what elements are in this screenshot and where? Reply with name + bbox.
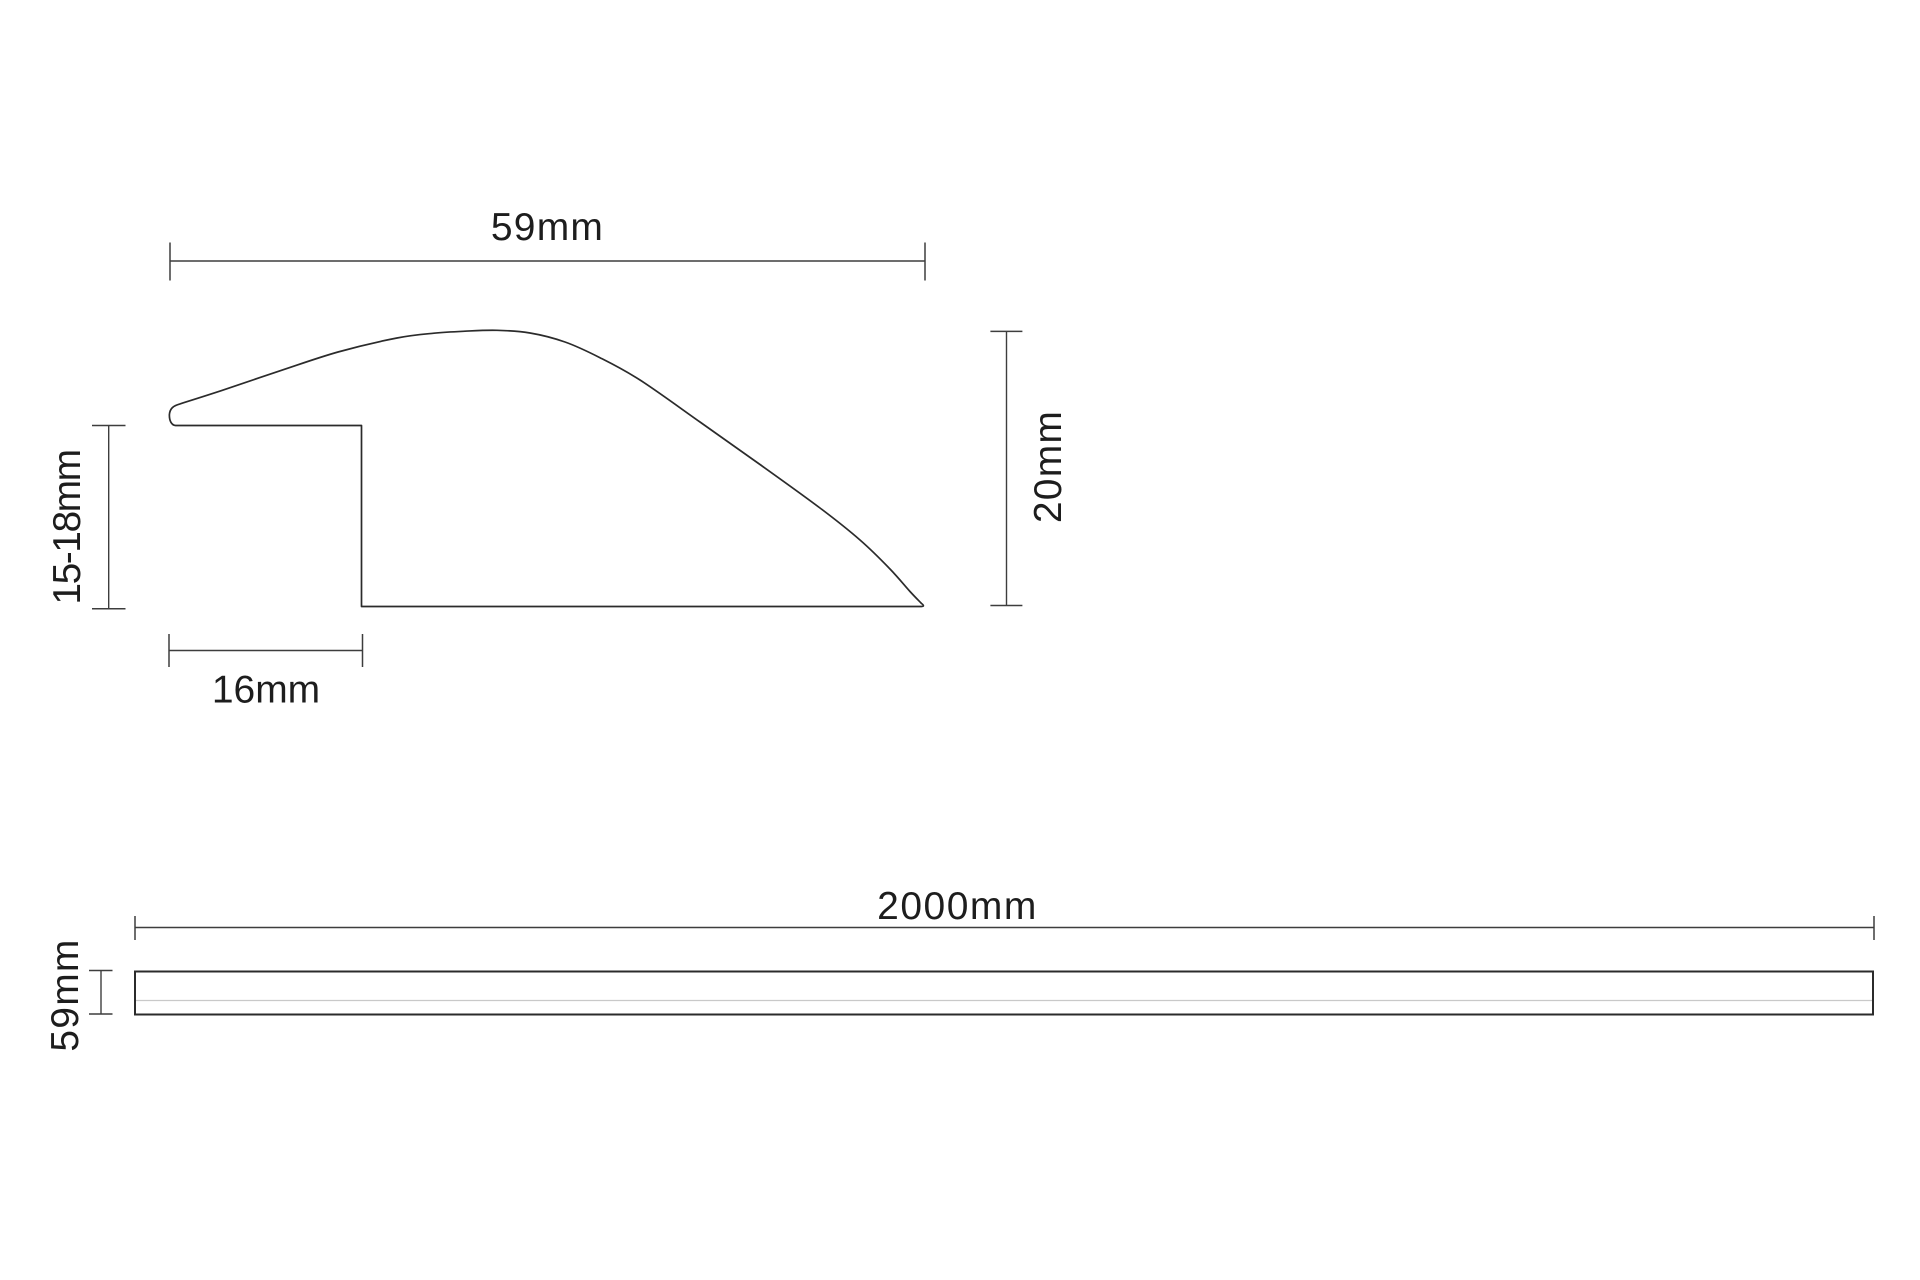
svg-text:59mm: 59mm (491, 206, 604, 249)
svg-text:15-18mm: 15-18mm (46, 450, 89, 604)
svg-text:20mm: 20mm (1027, 410, 1070, 523)
svg-text:2000mm: 2000mm (877, 885, 1038, 928)
svg-text:16mm: 16mm (212, 669, 320, 712)
svg-text:59mm: 59mm (44, 938, 87, 1051)
